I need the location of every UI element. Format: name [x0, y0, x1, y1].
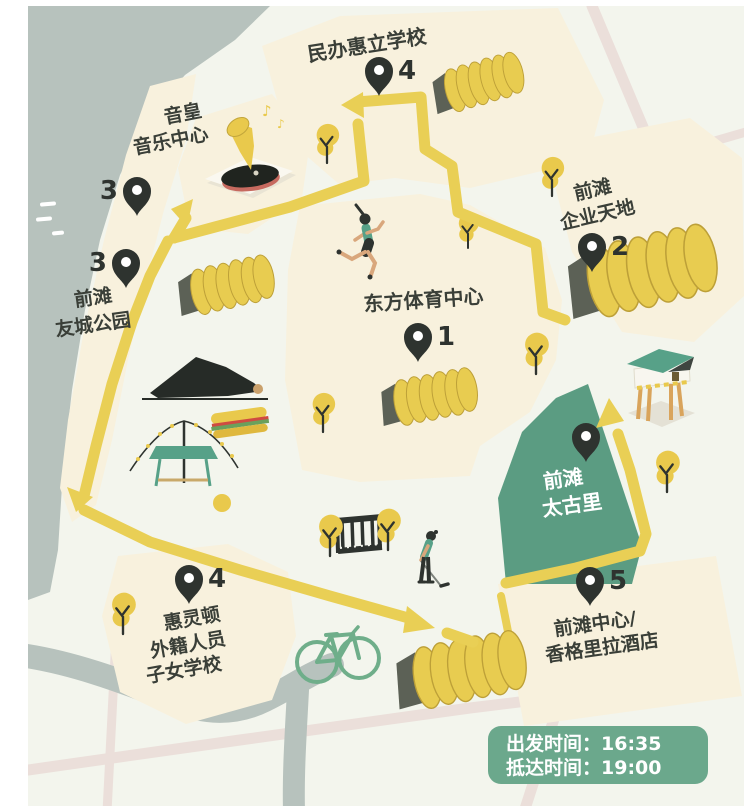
departure-time: 出发时间：16:35 — [506, 732, 661, 755]
river — [294, 690, 298, 812]
stop-number-music-center: 3 — [100, 176, 118, 206]
map-canvas: ♪ ♪ — [0, 0, 750, 812]
bush-icon — [213, 494, 231, 512]
stop-number-sports-center: 1 — [437, 322, 455, 352]
stop-number-qiantan-center: 5 — [609, 566, 627, 596]
stop-number-wellington: 4 — [208, 564, 226, 594]
stop-number-enterprise-sky: 2 — [611, 232, 629, 262]
stop-number-youcheng-park: 3 — [89, 248, 107, 278]
stop-number-huili-school: 4 — [398, 56, 416, 86]
schedule-badge: 出发时间：16:35 抵达时间：19:00 — [488, 726, 708, 784]
svg-text:♪: ♪ — [262, 102, 272, 120]
svg-text:♪: ♪ — [277, 117, 285, 131]
arrival-time: 抵达时间：19:00 — [506, 756, 661, 779]
